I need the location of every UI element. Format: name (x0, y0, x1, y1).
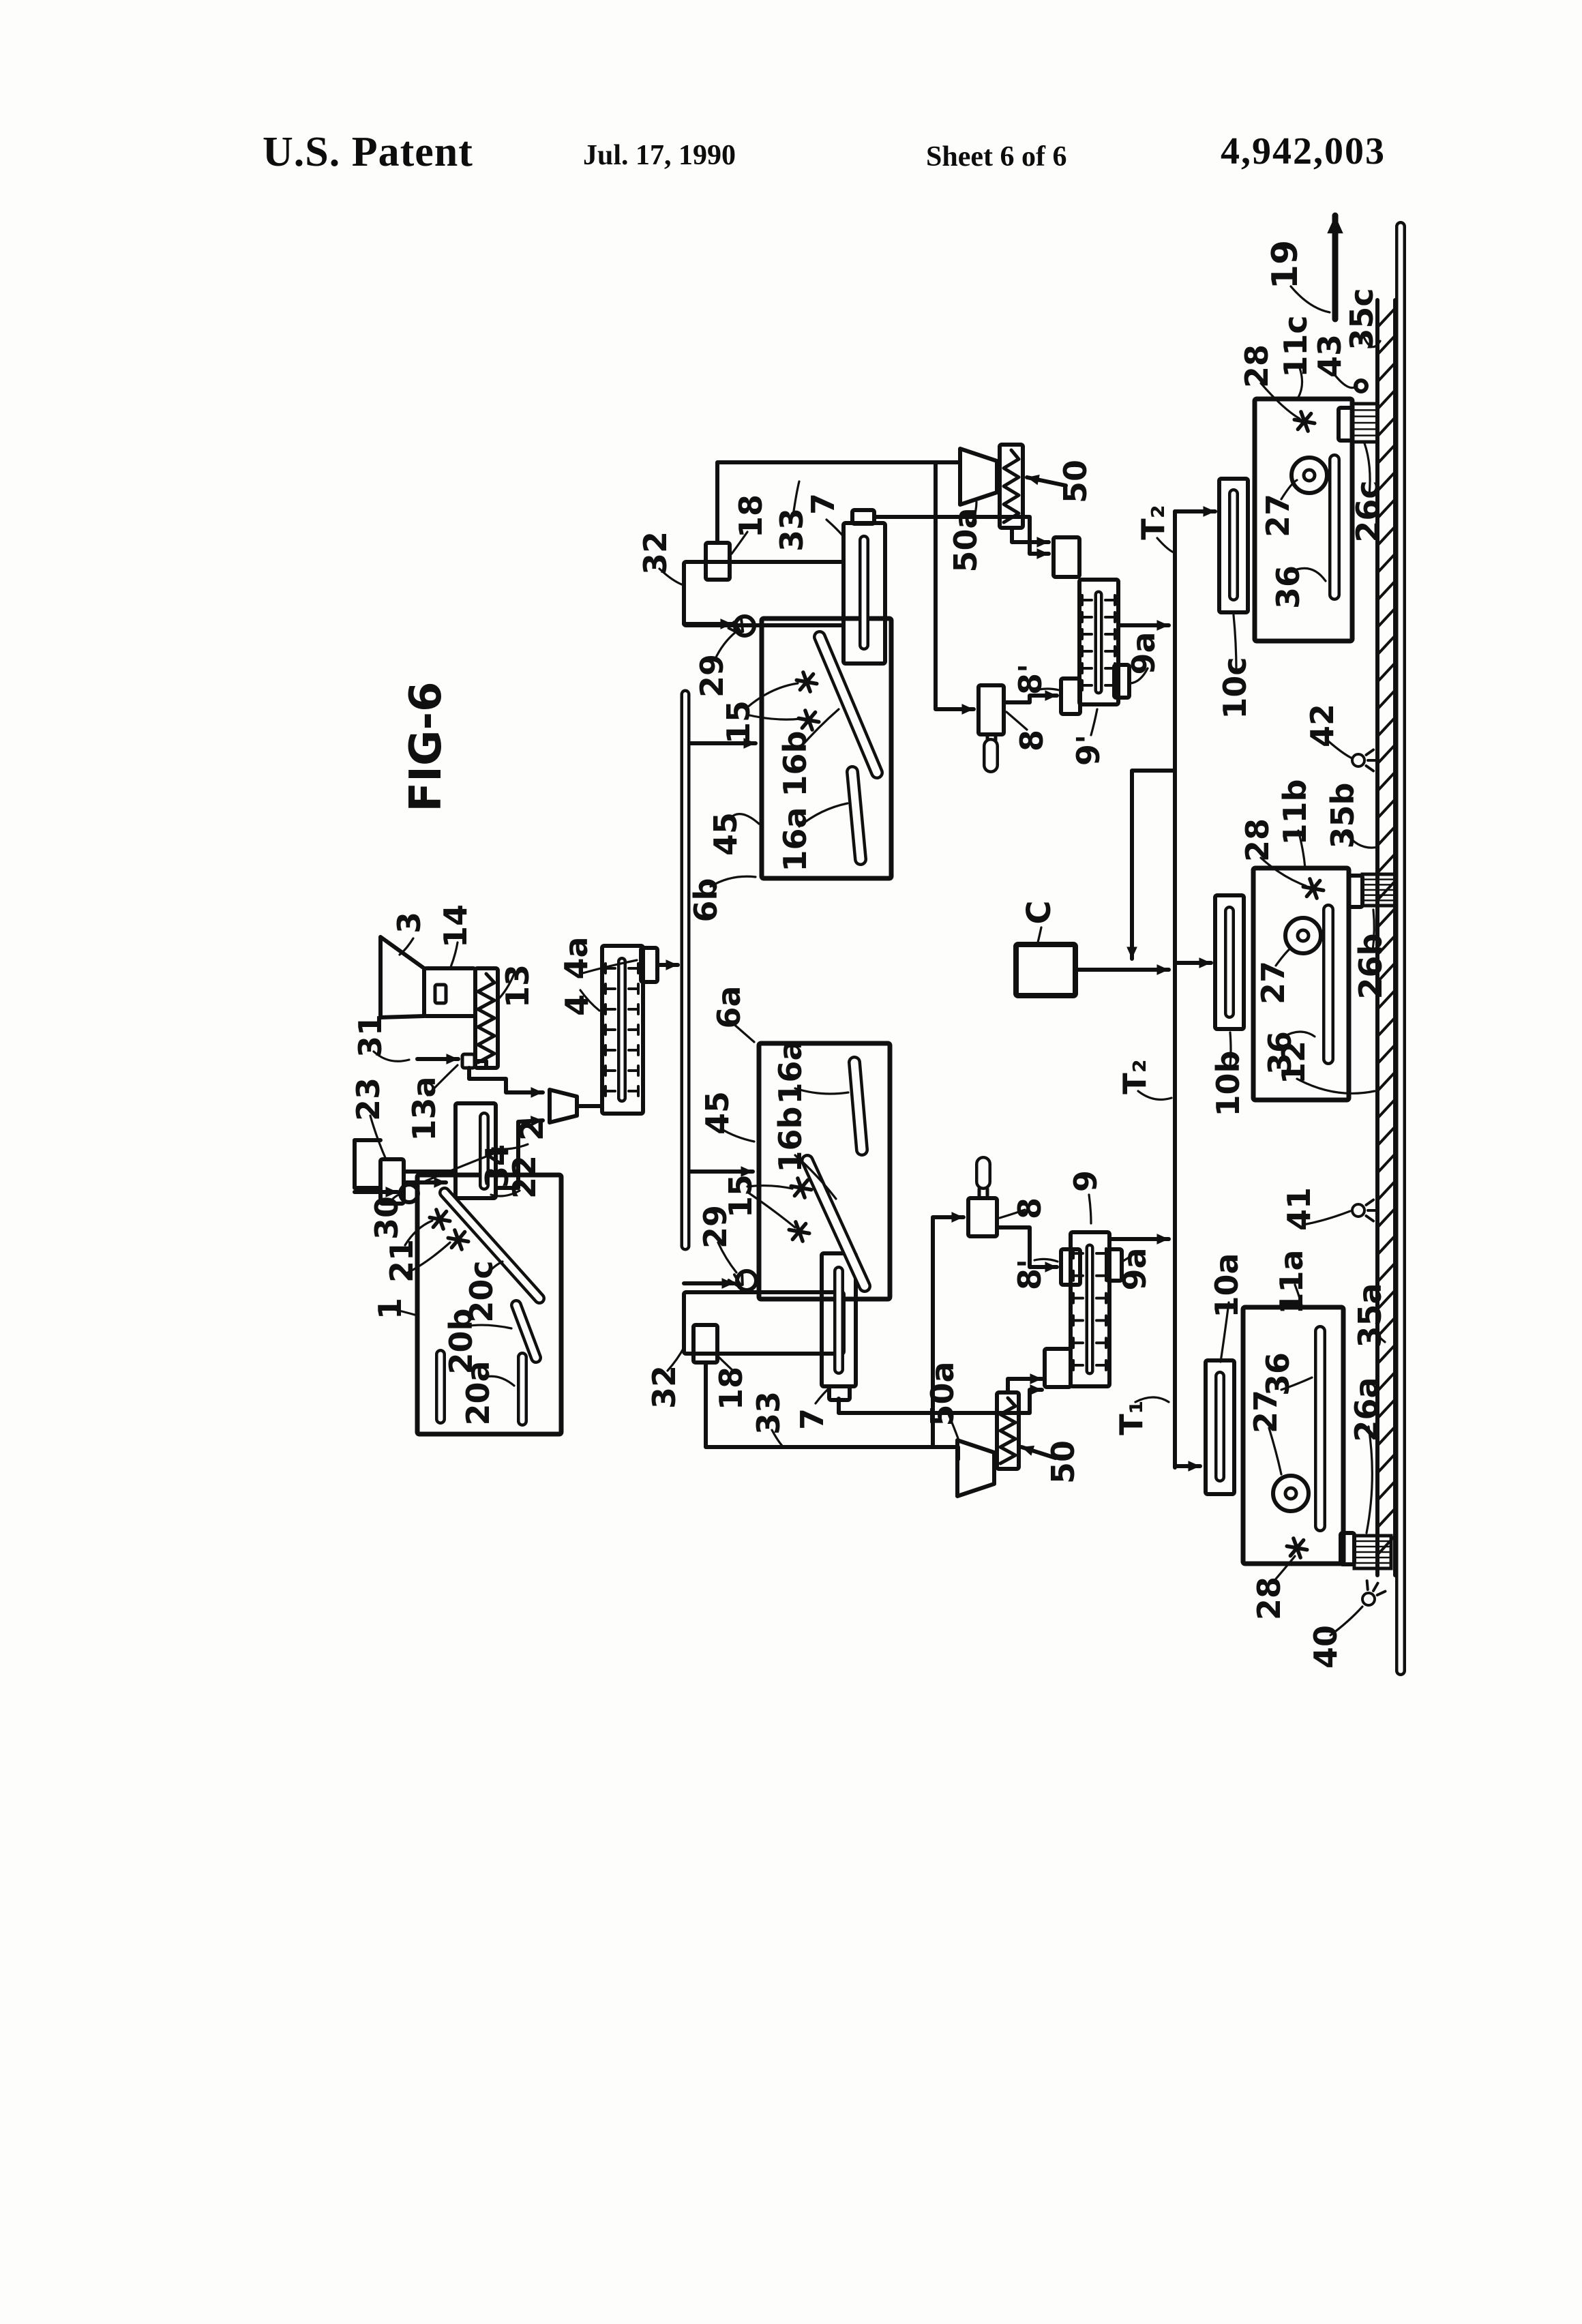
ref-label-13a: 13a (406, 1076, 443, 1141)
wall-hatch (1377, 663, 1395, 682)
ref-label-9: 9 (1067, 1170, 1104, 1192)
wall-hatch (1377, 908, 1395, 927)
ref-label-36: 36 (1270, 565, 1307, 609)
lamp-icon (1362, 1593, 1375, 1605)
ref-label-6b: 6b (687, 878, 724, 923)
flow-arrow-head (446, 1054, 458, 1064)
ref-label-26b: 26b (1352, 934, 1389, 1000)
flow-arrow-head (1156, 620, 1169, 631)
ref-label-10b: 10b (1210, 1051, 1247, 1117)
roller-hub (1298, 930, 1309, 941)
flow-arrow-head (961, 704, 974, 715)
flow-arrow-head (1030, 1384, 1042, 1395)
ref-label-28: 28 (1239, 818, 1276, 862)
ref-label-45: 45 (707, 812, 744, 856)
lamp-icon (1352, 754, 1364, 766)
flow-arrow-head (1126, 947, 1137, 959)
label-leader (1291, 286, 1330, 312)
label-leader (400, 938, 413, 955)
ref-label-12: 12 (1275, 1041, 1312, 1084)
ref-label-27: 27 (1247, 1390, 1284, 1433)
wall-hatch (1377, 690, 1395, 709)
wall-hatch (1377, 1263, 1395, 1282)
wall-hatch (1377, 745, 1395, 764)
ref-label-35b: 35b (1324, 783, 1361, 849)
wall-hatch (1377, 390, 1395, 409)
ref-label-50a: 50a (947, 507, 984, 572)
wall-hatch (1377, 363, 1395, 382)
flow-arrow-head (1199, 957, 1211, 968)
wall-hatch (1377, 1236, 1395, 1255)
ref-label-26c: 26c (1349, 480, 1386, 542)
ref-label-28: 28 (1238, 344, 1275, 388)
ref-label-42: 42 (1304, 704, 1341, 747)
patent-page: U.S. Patent Jul. 17, 1990 Sheet 6 of 6 4… (0, 0, 1582, 2324)
ref-label-50: 50 (1045, 1440, 1081, 1484)
flow-arrow-head (1036, 537, 1049, 548)
ref-label-19: 19 (1265, 240, 1306, 289)
ref-label-30: 30 (368, 1196, 405, 1240)
diagram-box (968, 1198, 997, 1236)
ref-label-15: 15 (720, 700, 757, 744)
ref-label-6a: 6a (711, 985, 747, 1028)
lamp-ray (1366, 1216, 1373, 1221)
lamp-icon (1352, 1204, 1364, 1217)
ref-label-11b: 11b (1277, 779, 1313, 846)
roller-core (516, 1305, 536, 1358)
ref-label-16a: 16a (772, 1039, 809, 1104)
lamp-ray (1367, 1581, 1368, 1590)
ref-label-18: 18 (732, 494, 769, 538)
funnel-shape (957, 1440, 994, 1496)
flow-arrow-head (951, 1212, 964, 1223)
roller-core (820, 637, 877, 773)
ref-label-9a: 9a (1116, 1247, 1153, 1290)
label-leader (1091, 709, 1097, 735)
wall-hatch (1377, 1508, 1395, 1528)
diagram-box (1016, 944, 1075, 996)
wall-hatch (1377, 1154, 1395, 1173)
lamp-ray (1373, 1583, 1378, 1591)
label-leader (1269, 1428, 1281, 1474)
roller-hub (1285, 1488, 1296, 1499)
ref-label-35a: 35a (1352, 1283, 1388, 1347)
pipe-line (355, 1140, 380, 1188)
lamp-ray (1366, 766, 1373, 771)
ref-label-35c: 35c (1343, 288, 1380, 350)
wall-hatch (1377, 1181, 1395, 1200)
diagram-box (684, 562, 844, 625)
ref-label-8: 8 (1013, 730, 1050, 751)
ref-label-32: 32 (637, 531, 674, 575)
ref-label-33: 33 (750, 1391, 787, 1435)
zigzag-spring (1000, 1398, 1015, 1463)
ref-label-29: 29 (693, 654, 730, 698)
ref-label-21: 21 (383, 1239, 420, 1283)
ref-label-41: 41 (1281, 1187, 1317, 1231)
flow-arrow-head (1030, 1373, 1042, 1384)
wall-hatch (1377, 636, 1395, 655)
ref-label-16b: 16b (777, 731, 814, 797)
diagram-box (462, 1054, 475, 1068)
spray-ray (742, 1272, 743, 1285)
diagram-box (979, 685, 1004, 734)
ref-label-7: 7 (794, 1408, 831, 1430)
flow-arrow-head (1021, 1446, 1034, 1456)
ref-label-22: 22 (506, 1155, 543, 1199)
ref-label-8: 8' (1011, 1259, 1048, 1290)
flow-arrow-head (531, 1087, 543, 1098)
flow-arrow (1132, 771, 1175, 959)
roller-hub (1304, 470, 1315, 481)
lamp-ray (1366, 750, 1373, 755)
ref-label-4: 4 (558, 994, 595, 1016)
ref-label-16a: 16a (777, 807, 814, 871)
wall-hatch (1377, 554, 1395, 573)
flow-arrow (936, 462, 974, 709)
ref-label-27: 27 (1255, 961, 1292, 1004)
diagram-box (1054, 537, 1079, 577)
wall-hatch (1377, 1454, 1395, 1473)
diagram-box (1061, 679, 1080, 714)
spray-ray (741, 619, 743, 631)
ref-label-fig6: FIG-6 (401, 681, 451, 811)
label-leader (1006, 712, 1027, 730)
wall-hatch (1377, 417, 1395, 436)
diagram-box (1341, 1533, 1354, 1564)
wall-hatch (1377, 1127, 1395, 1146)
ref-label-31: 31 (352, 1014, 389, 1058)
ref-label-11a: 11a (1273, 1249, 1310, 1314)
diagram-box (852, 510, 874, 524)
ref-label-32: 32 (646, 1365, 683, 1409)
wall-hatch (1377, 581, 1395, 600)
ref-label-45: 45 (699, 1091, 736, 1135)
ref-label-c: C (1020, 900, 1058, 924)
ref-label-8: 8' (1012, 664, 1049, 695)
zigzag-spring (478, 974, 494, 1062)
ref-label-27: 27 (1259, 494, 1296, 537)
wall-hatch (1377, 826, 1395, 846)
flow-arrow-head (1036, 548, 1049, 559)
flow-arrow-head (1156, 1234, 1169, 1245)
wall-hatch (1377, 1072, 1395, 1091)
funnel-shape (550, 1090, 577, 1122)
ref-label-t: T₂ (1116, 1059, 1153, 1094)
zigzag-spring (1004, 450, 1019, 522)
direction-arrow-19-head (1327, 215, 1343, 233)
flow-arrow-head (1203, 506, 1215, 517)
funnel-shape (960, 449, 997, 505)
flow-arrow-head (1156, 964, 1169, 975)
diagram-box (1045, 1349, 1071, 1387)
ref-label-9a: 9a (1125, 631, 1162, 674)
funnel-shape (380, 937, 424, 1017)
ref-label-40: 40 (1307, 1625, 1344, 1669)
wall-hatch (1377, 608, 1395, 627)
ref-label-10c: 10c (1217, 657, 1253, 719)
ref-label-3: 3 (391, 912, 428, 934)
diagram-box (1349, 876, 1362, 907)
ref-label-8: 8 (1011, 1197, 1048, 1219)
ref-label-1: 1 (372, 1298, 408, 1320)
ref-label-14: 14 (437, 904, 474, 948)
ref-label-13: 13 (499, 964, 536, 1008)
ref-label-26a: 26a (1348, 1377, 1385, 1442)
ref-label-10a: 10a (1208, 1253, 1245, 1317)
ref-label-20a: 20a (460, 1360, 496, 1425)
ref-label-18: 18 (713, 1367, 749, 1410)
wall-hatch (1377, 854, 1395, 873)
ref-label-15: 15 (722, 1174, 759, 1218)
wall-hatch (1377, 799, 1395, 818)
wall-hatch (1377, 1099, 1395, 1118)
ref-label-2: 2 (513, 1119, 550, 1141)
ref-label-16b: 16b (772, 1107, 809, 1173)
ref-label-11c: 11c (1277, 315, 1314, 377)
ref-label-50a: 50a (924, 1361, 961, 1426)
ref-label-50: 50 (1057, 460, 1094, 503)
wall-hatch (1377, 772, 1395, 791)
wall-hatch (1377, 1045, 1395, 1064)
flow-arrow-head (666, 959, 678, 970)
ref-label-28: 28 (1251, 1577, 1287, 1620)
lamp-ray (1377, 1592, 1386, 1595)
flow-arrow-head (1188, 1461, 1200, 1472)
ref-label-43: 43 (1311, 334, 1348, 378)
wall-hatch (1377, 1481, 1395, 1500)
diagram-box (1243, 1307, 1343, 1564)
wall-hatch (1377, 445, 1395, 464)
ref-label-7: 7 (805, 493, 841, 515)
wall-hatch (1377, 1208, 1395, 1227)
flow-arrow-head (434, 1177, 446, 1188)
ref-label-4a: 4a (558, 936, 595, 979)
ref-label-23: 23 (350, 1077, 387, 1121)
label-leader (370, 1116, 386, 1159)
patent-drawing-canvas: 1935c4311c282726c3610c42T₂50a509a8'89'32… (0, 0, 1582, 2324)
roller-circle (1292, 458, 1327, 493)
ref-label-t: T₁ (1113, 1400, 1150, 1435)
diagram-box (693, 1325, 717, 1362)
ref-label-36: 36 (1259, 1352, 1296, 1396)
ref-label-t: T₂ (1135, 505, 1171, 540)
ref-label-9: 9' (1070, 734, 1107, 766)
wall-hatch (1377, 1017, 1395, 1037)
diagram-box (435, 985, 446, 1003)
label-leader (1089, 1195, 1091, 1223)
diagram-box (424, 968, 475, 1016)
wall-hatch (1377, 717, 1395, 736)
roller-circle (1273, 1476, 1309, 1511)
lamp-ray (1366, 1200, 1373, 1205)
diagram-box (1339, 408, 1352, 441)
